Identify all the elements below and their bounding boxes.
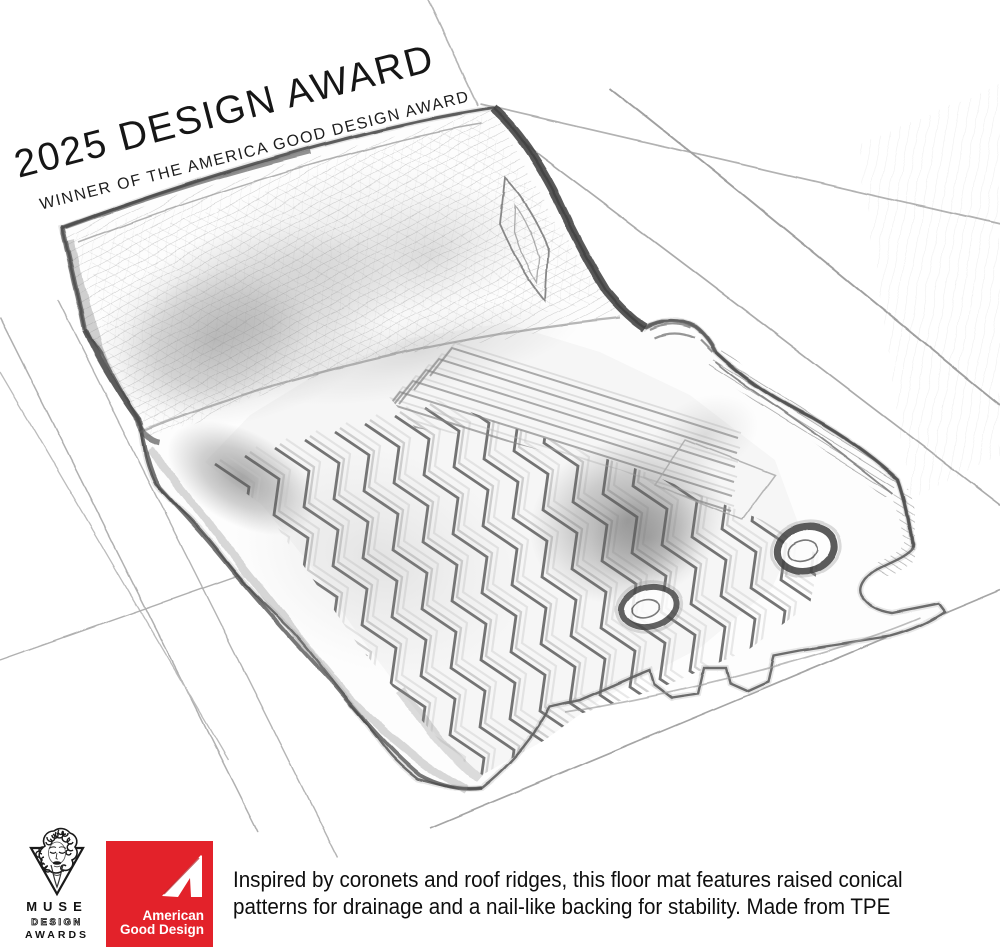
svg-text:Good Design: Good Design (120, 922, 204, 937)
svg-text:American: American (142, 908, 204, 923)
svg-text:MUSE: MUSE (26, 899, 88, 914)
svg-text:AWARDS: AWARDS (25, 929, 89, 941)
svg-text:DESIGN: DESIGN (31, 917, 82, 928)
